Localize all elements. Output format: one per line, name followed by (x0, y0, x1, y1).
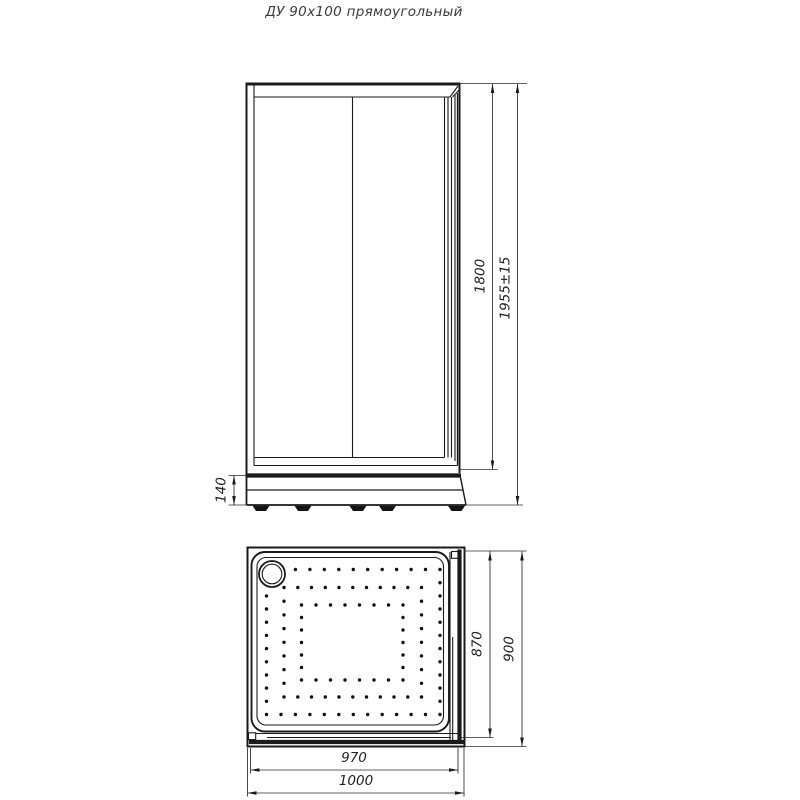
top-dimensions: 870 900 970 1000 (248, 551, 527, 797)
anti-slip-dot (265, 594, 268, 597)
anti-slip-dot (265, 621, 268, 624)
anti-slip-dot (308, 713, 311, 716)
anti-slip-dot (324, 695, 327, 698)
anti-slip-dot (381, 568, 384, 571)
anti-slip-dot (438, 581, 441, 584)
anti-slip-dot (282, 695, 285, 698)
anti-slip-dot (300, 628, 303, 631)
anti-slip-dot (372, 678, 375, 681)
anti-slip-dot (379, 586, 382, 589)
anti-slip-dot (401, 653, 404, 656)
tray-foot (253, 506, 270, 511)
anti-slip-dot (438, 621, 441, 624)
anti-slip-dot (438, 634, 441, 637)
anti-slip-dot (387, 678, 390, 681)
anti-slip-dot (420, 695, 423, 698)
tray-right-slant (461, 478, 467, 506)
anti-slip-dot (406, 586, 409, 589)
anti-slip-dot (409, 568, 412, 571)
anti-slip-dot (438, 647, 441, 650)
anti-slip-dot (358, 678, 361, 681)
drawing-title: ДУ 90х100 прямоугольный (264, 4, 462, 20)
anti-slip-dot (387, 603, 390, 606)
arrow-left-icon (248, 791, 257, 795)
anti-slip-dot (420, 654, 423, 657)
anti-slip-dot (282, 654, 285, 657)
front-tray (246, 476, 467, 512)
anti-slip-dot (401, 678, 404, 681)
anti-slip-dot (395, 568, 398, 571)
anti-slip-dot (337, 586, 340, 589)
tray-foot (448, 506, 465, 511)
anti-slip-dot (438, 686, 441, 689)
anti-slip-dot (351, 586, 354, 589)
arrow-right-icon (449, 768, 458, 772)
anti-slip-dot (379, 695, 382, 698)
anti-slip-dot (265, 647, 268, 650)
technical-drawing: ДУ 90х100 прямоугольный (0, 0, 800, 800)
anti-slip-dot (372, 603, 375, 606)
anti-slip-dot (366, 568, 369, 571)
anti-slip-dot (392, 695, 395, 698)
anti-slip-dot (296, 586, 299, 589)
anti-slip-dot (265, 700, 268, 703)
anti-slip-dot (310, 695, 313, 698)
dim-label-total-height: 1955±15 (498, 257, 514, 320)
anti-slip-dot (438, 594, 441, 597)
tray-foot (295, 506, 312, 511)
anti-slip-dot (296, 695, 299, 698)
front-dimensions: 1800 1955±15 140 (214, 84, 528, 506)
arrow-up-icon (488, 552, 492, 561)
anti-slip-dot (282, 613, 285, 616)
anti-slip-dot (300, 641, 303, 644)
corner-post-bottom-left (249, 733, 256, 740)
anti-slip-dot (300, 603, 303, 606)
anti-slip-dot (300, 653, 303, 656)
anti-slip-dot (300, 666, 303, 669)
anti-slip-dot (265, 634, 268, 637)
anti-slip-dot (329, 678, 332, 681)
tray-rim-outer (252, 552, 450, 732)
drawing-canvas: ДУ 90х100 прямоугольный (0, 0, 800, 800)
drain-hole-icon (259, 561, 285, 587)
anti-slip-dot (352, 713, 355, 716)
anti-slip-dot (401, 666, 404, 669)
dim-label-door-height: 1800 (473, 259, 489, 293)
anti-slip-dot (438, 607, 441, 610)
arrow-right-icon (455, 791, 464, 795)
tray-feet (253, 506, 466, 511)
anti-slip-dot (265, 686, 268, 689)
arrow-down-icon (516, 496, 520, 505)
anti-slip-dot (265, 607, 268, 610)
arrow-up-icon (520, 552, 524, 561)
anti-slip-dot (300, 678, 303, 681)
anti-slip-dot (358, 603, 361, 606)
anti-slip-dot (282, 682, 285, 685)
anti-slip-dot (401, 603, 404, 606)
anti-slip-dot (323, 568, 326, 571)
anti-slip-dot (329, 603, 332, 606)
anti-slip-dot (314, 603, 317, 606)
anti-slip-dot (438, 713, 441, 716)
arrow-down-icon (520, 738, 524, 747)
drain-hole-inner-icon (262, 564, 282, 584)
anti-slip-dot (282, 600, 285, 603)
anti-slip-dot (392, 586, 395, 589)
anti-slip-dot (401, 628, 404, 631)
anti-slip-dot (420, 613, 423, 616)
anti-slip-dot (420, 627, 423, 630)
tray-foot (350, 506, 367, 511)
anti-slip-dot (265, 660, 268, 663)
anti-slip-dot (265, 713, 268, 716)
anti-slip-dot (381, 713, 384, 716)
anti-slip-dot (323, 713, 326, 716)
anti-slip-dot (310, 586, 313, 589)
anti-slip-dot (352, 568, 355, 571)
anti-slip-dot (300, 616, 303, 619)
dim-label-outer-depth: 900 (502, 636, 518, 662)
anti-slip-dot (337, 695, 340, 698)
anti-slip-dot (401, 641, 404, 644)
arrow-down-icon (232, 496, 236, 505)
anti-slip-dot (337, 568, 340, 571)
anti-slip-dot (265, 673, 268, 676)
anti-slip-dot (420, 668, 423, 671)
anti-slip-dot (420, 586, 423, 589)
anti-slip-dot (365, 586, 368, 589)
anti-slip-dot (282, 641, 285, 644)
dim-label-inner-width: 970 (341, 750, 367, 766)
anti-slip-dot (395, 713, 398, 716)
anti-slip-dot (420, 641, 423, 644)
arrow-up-icon (232, 476, 236, 485)
arrow-up-icon (516, 84, 520, 93)
arrow-left-icon (251, 768, 260, 772)
anti-slip-dot (337, 713, 340, 716)
tray-foot (379, 506, 396, 511)
tray-plan-outline (248, 548, 465, 747)
anti-slip-dot (438, 700, 441, 703)
anti-slip-dot (409, 713, 412, 716)
anti-slip-dot (282, 586, 285, 589)
dim-label-outer-width: 1000 (339, 773, 373, 789)
anti-slip-dot (424, 713, 427, 716)
anti-slip-dot (406, 695, 409, 698)
top-view: 870 900 970 1000 (248, 548, 527, 797)
anti-slip-dot (308, 568, 311, 571)
anti-slip-dot-pattern (265, 568, 442, 716)
anti-slip-dot (420, 682, 423, 685)
anti-slip-dot (438, 673, 441, 676)
anti-slip-dot (324, 586, 327, 589)
anti-slip-dot (365, 695, 368, 698)
anti-slip-dot (438, 568, 441, 571)
anti-slip-dot (294, 713, 297, 716)
front-frame (246, 83, 461, 476)
arrow-down-icon (488, 729, 492, 738)
anti-slip-dot (351, 695, 354, 698)
anti-slip-dot (314, 678, 317, 681)
anti-slip-dot (282, 668, 285, 671)
dim-label-tray-height: 140 (214, 477, 230, 503)
dim-label-inner-depth: 870 (470, 631, 486, 657)
arrow-down-icon (491, 461, 495, 470)
tray-outer-rect (248, 548, 465, 747)
anti-slip-dot (282, 627, 285, 630)
anti-slip-dot (279, 713, 282, 716)
anti-slip-dot (424, 568, 427, 571)
front-view: 1800 1955±15 140 (214, 83, 528, 512)
arrow-up-icon (491, 84, 495, 93)
anti-slip-dot (294, 568, 297, 571)
anti-slip-dot (366, 713, 369, 716)
anti-slip-dot (438, 660, 441, 663)
anti-slip-dot (343, 603, 346, 606)
anti-slip-dot (420, 600, 423, 603)
anti-slip-dot (343, 678, 346, 681)
anti-slip-dot (401, 616, 404, 619)
